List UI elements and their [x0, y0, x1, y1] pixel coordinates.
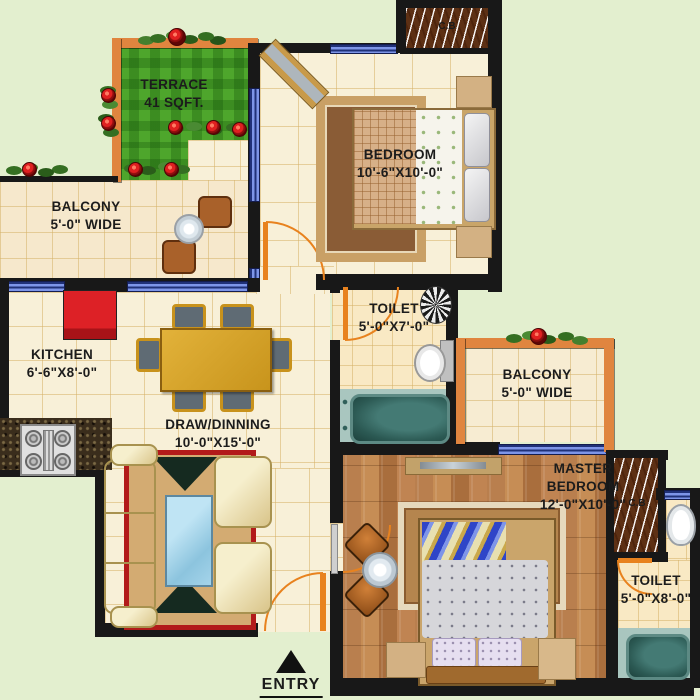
balcony-right-dim: 5'-0" WIDE [501, 384, 572, 402]
bed-pillow [464, 113, 490, 167]
sofa-single-top [214, 456, 272, 528]
flower-cluster-terrace-top [150, 34, 166, 43]
flower-cluster-balcony-left [6, 166, 22, 175]
draw-dining-label: DRAW/DINNING 10'-0"X15'-0" [165, 416, 271, 452]
balcony-right-name: BALCONY [501, 366, 572, 384]
master-pillow [478, 638, 522, 668]
toilet-bowl [414, 344, 446, 382]
sofa-single-bottom [214, 542, 272, 614]
balcony-left-name: BALCONY [50, 198, 121, 216]
burner [54, 453, 71, 470]
stove-grill [43, 430, 54, 471]
balcony-left-dim: 5'-0" WIDE [50, 216, 121, 234]
rose [168, 28, 186, 46]
toilet-bottom-dim: 5'-0"X8'-0" [621, 590, 692, 608]
carpet-pattern-top [153, 457, 217, 491]
master-dim: 12'-0"X10'-0" [540, 496, 626, 514]
toilet-top-label: TOILET 5'-0"X7'-0" [359, 300, 430, 336]
master-bed [418, 518, 556, 686]
sofa-armrest-top [110, 444, 158, 466]
master-duvet [422, 560, 548, 638]
center-table [165, 495, 213, 587]
toilet-top-dim: 5'-0"X7'-0" [359, 318, 430, 336]
master-dresser-mirror [420, 462, 486, 469]
draw-dining-dim: 10'-0"X15'-0" [165, 434, 271, 452]
balcony-table [174, 214, 204, 244]
dining-table [160, 328, 272, 392]
master-bedroom-label: MASTER BEDROOM 12'-0"X10'-0" [540, 460, 626, 515]
rose [128, 162, 143, 177]
dining-chair [136, 338, 162, 372]
sofa-armrest-bottom [110, 606, 158, 628]
dining-chair [172, 304, 206, 330]
bathtub-top [350, 394, 450, 444]
bedroom-dim: 10'-6"X10'-0" [357, 164, 443, 182]
entry-label: ENTRY [260, 674, 323, 698]
balcony-left-label: BALCONY 5'-0" WIDE [50, 198, 121, 234]
refrigerator [63, 290, 117, 340]
floor-plan: TERRACE 41 SQFT. BALCONY 5'-0" WIDE BEDR… [0, 0, 700, 700]
cupboard-right-label: C.B [628, 497, 645, 511]
toilet-bottom-label: TOILET 5'-0"X8'-0" [621, 572, 692, 608]
stove [20, 424, 76, 476]
bed-pillow [464, 168, 490, 222]
master-pillow [432, 638, 476, 668]
flower-cluster-balcony-right [506, 334, 522, 343]
kitchen-label: KITCHEN 6'-6"X8'-0" [27, 346, 98, 382]
kitchen-name: KITCHEN [27, 346, 98, 364]
terrace-name: TERRACE [140, 76, 207, 94]
balcony-right-label: BALCONY 5'-0" WIDE [501, 366, 572, 402]
balcony-chair [162, 240, 196, 274]
master-nightstand [538, 638, 576, 680]
master-line1: MASTER [540, 460, 626, 478]
master-headboard [426, 666, 546, 684]
burner [25, 430, 42, 447]
burner [25, 453, 42, 470]
washbasin-bottom [666, 504, 696, 546]
entry-arrow-icon [276, 650, 306, 673]
corner-dresser [262, 52, 324, 110]
toilet-bottom-name: TOILET [621, 572, 692, 590]
nightstand [456, 226, 492, 258]
bedroom-label: BEDROOM 10'-6"X10'-0" [357, 146, 443, 182]
rose [232, 122, 247, 137]
rose [101, 88, 116, 103]
rose [22, 162, 37, 177]
burner [54, 430, 71, 447]
master-dresser [405, 457, 502, 475]
master-nightstand [386, 642, 426, 678]
kitchen-dim: 6'-6"X8'-0" [27, 364, 98, 382]
cupboard-top-label: C.B [438, 20, 455, 34]
terrace-dim: 41 SQFT. [140, 94, 207, 112]
rose [164, 162, 179, 177]
master-side-table [362, 552, 398, 588]
bathtub-bottom [626, 634, 690, 680]
dining-chair [220, 304, 254, 330]
rose [101, 116, 116, 131]
rose [206, 120, 221, 135]
bedroom-name: BEDROOM [357, 146, 443, 164]
rose [530, 328, 547, 345]
rose [168, 120, 183, 135]
nightstand [456, 76, 492, 108]
toilet-top-name: TOILET [359, 300, 430, 318]
terrace-label: TERRACE 41 SQFT. [140, 76, 207, 112]
sofa-three-seater [104, 460, 156, 614]
master-line2: BEDROOM [540, 478, 626, 496]
draw-dining-name: DRAW/DINNING [165, 416, 271, 434]
